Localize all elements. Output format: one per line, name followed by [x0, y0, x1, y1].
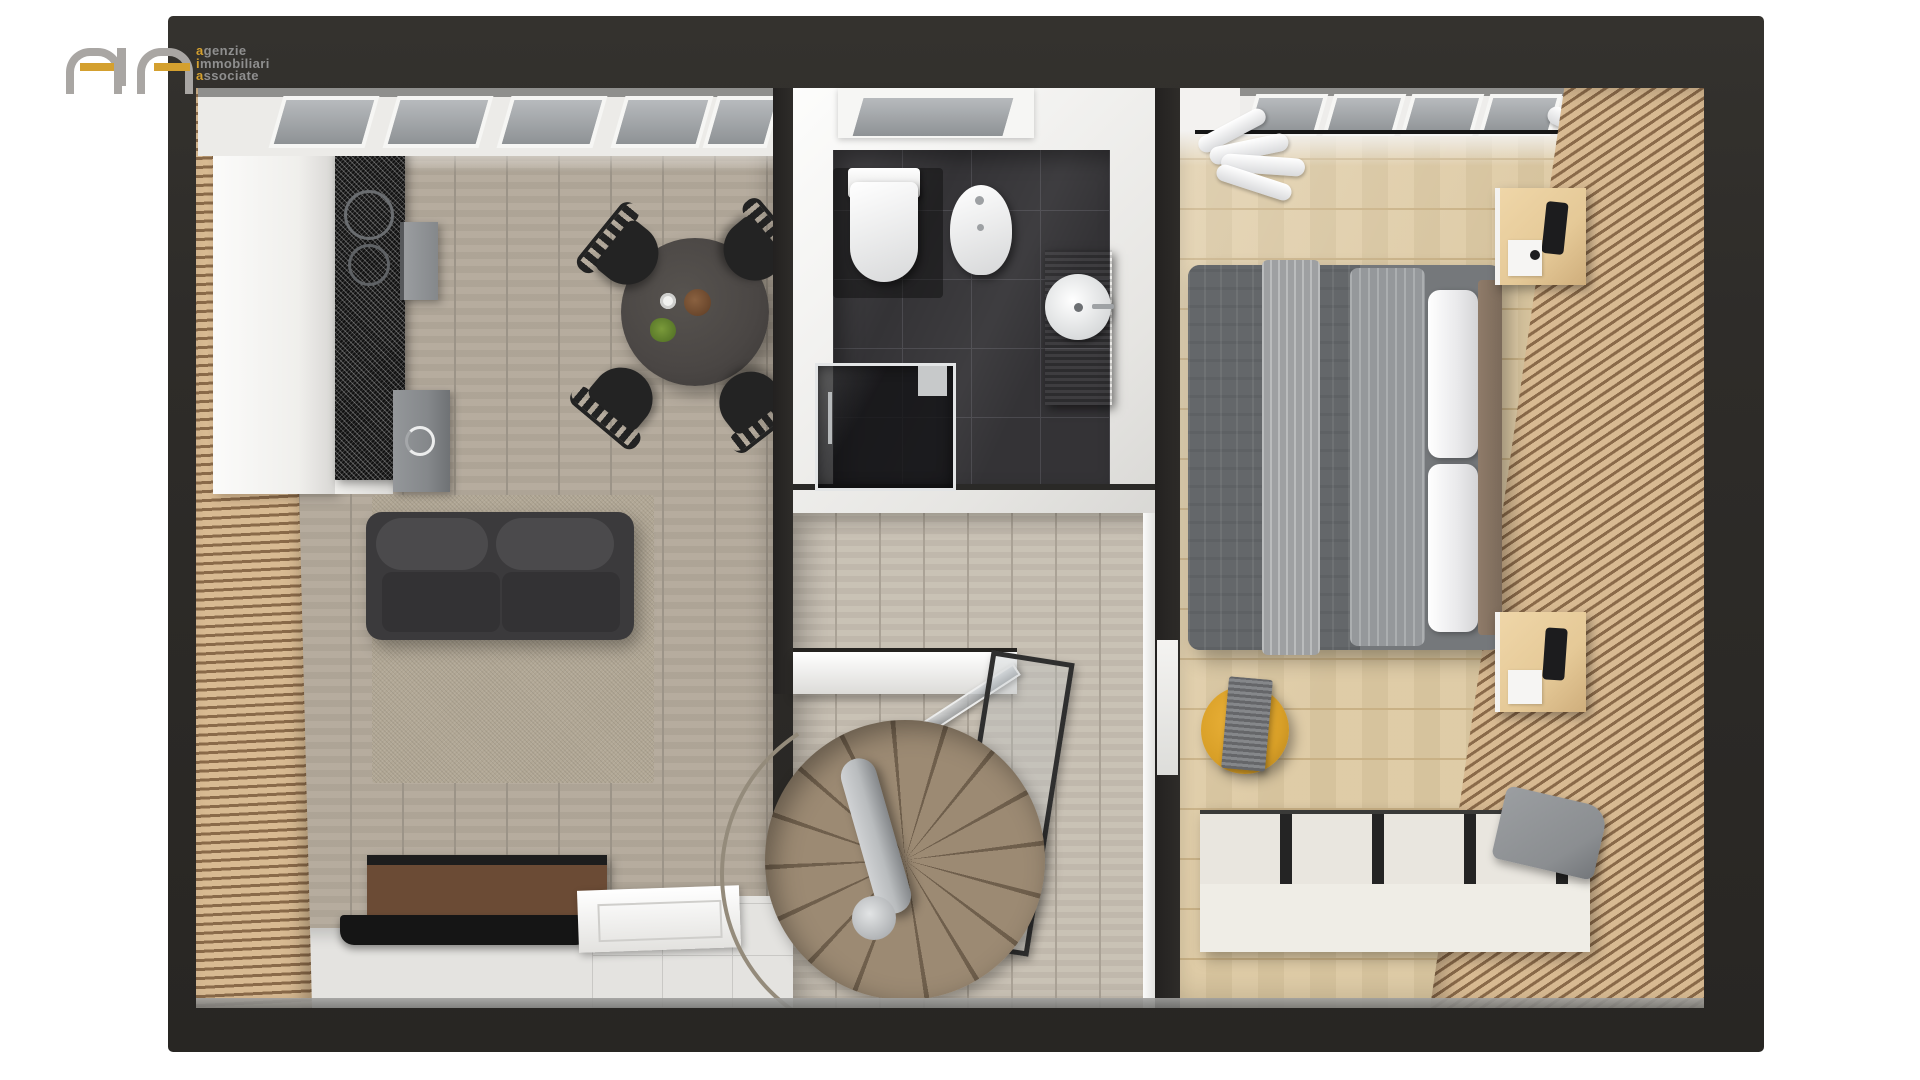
bathroom-skylight [838, 88, 1034, 138]
stair-treads [765, 720, 1045, 1000]
wall-hall-bedroom [1155, 88, 1180, 1008]
cooktop-burner-icon [348, 244, 390, 286]
baseboard-strip [196, 998, 1704, 1008]
shower-shelf [918, 366, 947, 396]
toilet [850, 182, 918, 282]
skylight-pane [611, 96, 714, 148]
tv [340, 915, 590, 945]
logo-arch-icon [137, 48, 193, 94]
sofa-back-cushion [496, 518, 614, 570]
bed-pillow [1428, 290, 1478, 458]
logo-wordmark: agenzie immobiliari associate [196, 45, 306, 89]
living-skylight-band [198, 88, 773, 156]
phone [1541, 201, 1568, 255]
spiral-staircase [700, 694, 1155, 1008]
skylight-pane [703, 96, 773, 148]
bed-pillow [1428, 464, 1478, 632]
sink-drain-icon [1074, 303, 1083, 312]
nightstand [1495, 188, 1586, 285]
hanger-cluster [1195, 112, 1315, 212]
sink-faucet-icon [1092, 304, 1114, 309]
table-plant [650, 318, 676, 342]
tv-sideboard [367, 855, 607, 917]
phone [1542, 627, 1568, 680]
table-cup [660, 293, 676, 309]
shower-handle-icon [828, 392, 832, 444]
skylight-pane [383, 96, 494, 148]
skylight-pane [269, 96, 380, 148]
clock-icon [1530, 250, 1540, 260]
skylight-pane [497, 96, 608, 148]
bed-runner-blanket [1262, 260, 1320, 655]
cooktop-burner-icon [344, 190, 394, 240]
table-bowl [684, 289, 711, 316]
sofa-seat-cushion [502, 572, 620, 632]
skylight-pane [847, 94, 1018, 138]
washing-machine-door-icon [405, 426, 435, 456]
nightstand [1495, 612, 1586, 712]
bidet-faucet-icon [975, 196, 984, 205]
bedroom-door-opening [1157, 640, 1178, 775]
pouf-throw-blanket [1221, 676, 1273, 771]
wall-living-hall [773, 88, 793, 694]
logo-text-line: associate [196, 70, 306, 83]
logo-bar-icon [117, 48, 126, 86]
floor-plan-render: agenzie immobiliari associate [0, 0, 1920, 1080]
sofa-seat-cushion [382, 572, 500, 632]
sofa-back-cushion [376, 518, 488, 570]
logo-arch-icon [66, 48, 122, 94]
stair-pole-base [852, 896, 896, 940]
bed-sheet-fold [1350, 268, 1425, 646]
logo-gold-dash-icon [154, 63, 190, 71]
oven [400, 222, 438, 300]
logo-gold-dash-icon [80, 63, 114, 71]
notepad [1508, 670, 1542, 704]
bed-headboard [1478, 280, 1502, 635]
bidet-drain-icon [977, 224, 984, 231]
aia-logo: agenzie immobiliari associate [56, 42, 286, 90]
